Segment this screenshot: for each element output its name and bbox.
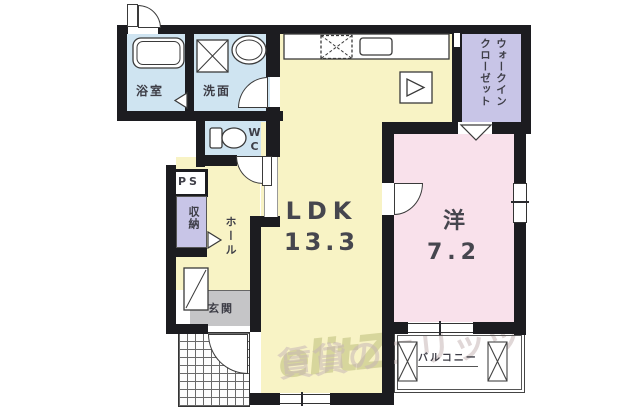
wall xyxy=(158,25,531,34)
bathroom-floor xyxy=(127,34,185,111)
floor-plan: elitZ 賃貸のエリッツ xyxy=(0,0,640,416)
wall xyxy=(166,248,207,257)
balcony-label: バルコニー xyxy=(418,349,478,367)
ldk-label: LDK 13.3 xyxy=(261,196,382,258)
window-tick xyxy=(511,201,529,203)
wall xyxy=(473,322,526,334)
wall xyxy=(117,25,127,121)
wall xyxy=(382,215,394,405)
wc-door-leaf xyxy=(262,156,272,186)
western-room-side-window xyxy=(513,183,527,223)
wall xyxy=(166,324,208,334)
wall xyxy=(196,155,237,166)
wall xyxy=(382,122,458,134)
ldk-bottom-window xyxy=(280,394,330,404)
window-tick xyxy=(439,321,441,335)
hall-label: ホール xyxy=(222,216,238,258)
ldk-name: LDK xyxy=(261,196,382,227)
walk-in-closet-label-line1: ウォークイン xyxy=(493,38,509,122)
window-tick xyxy=(301,392,303,406)
walk-in-closet-label: ウォークイン クローゼット xyxy=(477,38,509,122)
wall xyxy=(521,25,531,134)
wall xyxy=(250,227,261,290)
entrance-label: 玄関 xyxy=(208,300,234,316)
storage-label: 収納 xyxy=(185,206,201,230)
walk-in-closet-label-line2: クローゼット xyxy=(477,38,493,122)
wall xyxy=(394,322,408,334)
wall xyxy=(514,134,526,183)
western-room-label: 洋 7.2 xyxy=(394,206,514,268)
wall xyxy=(514,222,526,335)
ldk-kitchen-floor xyxy=(280,34,452,122)
wall xyxy=(330,393,394,405)
ldk-size: 13.3 xyxy=(261,227,382,258)
western-room-size: 7.2 xyxy=(394,237,514,268)
bathroom-label: 浴室 xyxy=(136,82,164,99)
wall xyxy=(185,34,194,111)
top-door-arc xyxy=(138,5,161,28)
wall xyxy=(250,290,261,332)
washroom-label: 洗面 xyxy=(203,82,231,99)
pipe-space-label: PS xyxy=(178,175,200,188)
wall xyxy=(266,34,280,77)
top-door-leaf xyxy=(127,4,138,27)
wall-notch xyxy=(454,33,460,47)
wall xyxy=(266,107,280,157)
western-room-name: 洋 xyxy=(394,206,514,237)
wc-label: WC xyxy=(248,126,261,154)
wall xyxy=(250,393,280,405)
